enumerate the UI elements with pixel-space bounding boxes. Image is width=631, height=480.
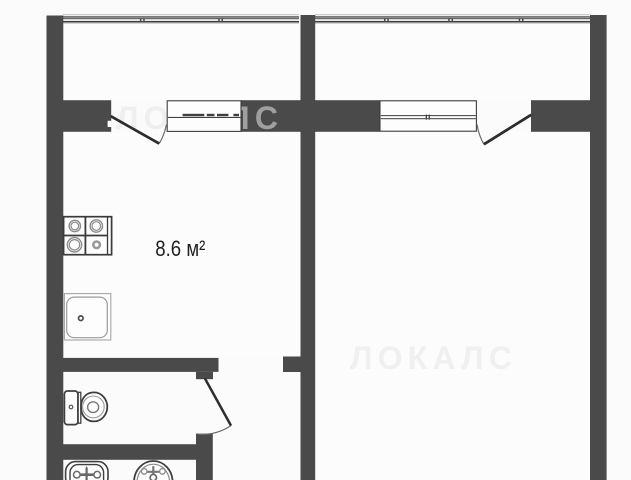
svg-text:ЛОКАЛС: ЛОКАЛС <box>350 340 517 376</box>
svg-text:8.6 м²: 8.6 м² <box>155 236 205 261</box>
